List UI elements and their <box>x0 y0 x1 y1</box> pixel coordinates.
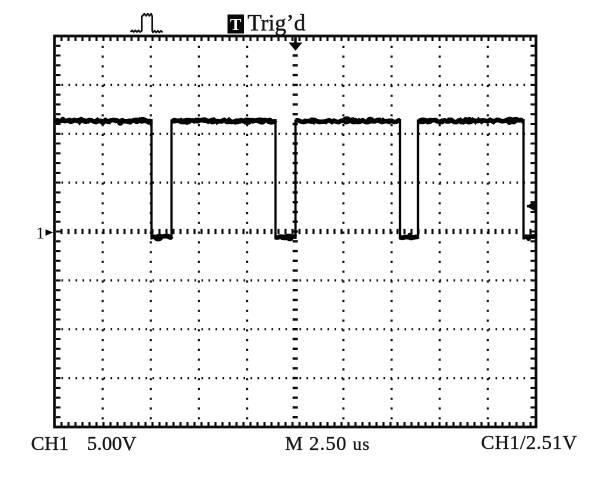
svg-text:CH1: CH1 <box>31 433 69 455</box>
svg-text:Trig’d: Trig’d <box>248 11 306 36</box>
svg-text:5.00V: 5.00V <box>87 433 137 455</box>
svg-text:T: T <box>230 15 242 34</box>
svg-text:1: 1 <box>36 224 45 243</box>
svg-text:M 2.50 us: M 2.50 us <box>285 433 370 455</box>
svg-text:CH1/2.51V: CH1/2.51V <box>481 432 578 454</box>
